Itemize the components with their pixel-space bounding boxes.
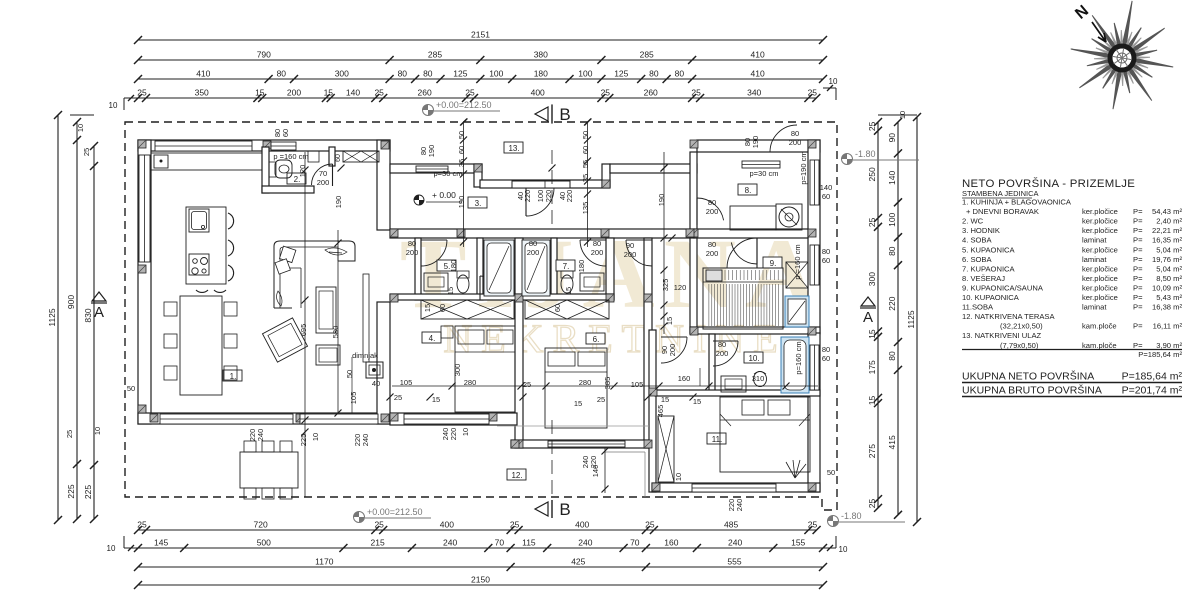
svg-text:80: 80 bbox=[718, 340, 726, 349]
svg-text:135: 135 bbox=[581, 202, 590, 215]
svg-text:5,43 m²: 5,43 m² bbox=[1156, 293, 1182, 302]
svg-text:P=: P= bbox=[1133, 293, 1143, 302]
svg-text:80: 80 bbox=[708, 198, 716, 207]
svg-text:12. NATKRIVENA TERASA: 12. NATKRIVENA TERASA bbox=[962, 312, 1055, 321]
svg-text:25: 25 bbox=[691, 88, 701, 98]
svg-text:240: 240 bbox=[361, 434, 370, 447]
svg-text:15: 15 bbox=[574, 399, 582, 408]
svg-text:9. KUPAONICA/SAUNA: 9. KUPAONICA/SAUNA bbox=[962, 284, 1044, 293]
svg-text:10: 10 bbox=[93, 427, 102, 435]
svg-text:200: 200 bbox=[716, 349, 729, 358]
svg-text:225: 225 bbox=[83, 485, 93, 499]
svg-text:105: 105 bbox=[400, 378, 413, 387]
svg-text:ker.pločice: ker.pločice bbox=[1082, 264, 1118, 273]
svg-text:1. KUHINJA + BLAGOVAONICA: 1. KUHINJA + BLAGOVAONICA bbox=[962, 198, 1072, 207]
svg-text:260: 260 bbox=[644, 88, 658, 98]
svg-text:10: 10 bbox=[839, 545, 848, 554]
svg-text:3,90 m²: 3,90 m² bbox=[1156, 341, 1182, 350]
svg-text:10,09 m²: 10,09 m² bbox=[1152, 284, 1182, 293]
svg-text:220: 220 bbox=[523, 190, 532, 203]
svg-text:60: 60 bbox=[335, 154, 342, 162]
svg-text:160: 160 bbox=[678, 374, 691, 383]
svg-text:200: 200 bbox=[317, 178, 330, 187]
svg-text:70: 70 bbox=[495, 538, 505, 548]
svg-text:200: 200 bbox=[624, 250, 637, 259]
svg-text:6. SOBA: 6. SOBA bbox=[962, 255, 992, 264]
svg-text:P=: P= bbox=[1133, 264, 1143, 273]
svg-text:1125: 1125 bbox=[47, 308, 57, 327]
svg-text:105: 105 bbox=[631, 380, 644, 389]
svg-text:kam.ploče: kam.ploče bbox=[1082, 322, 1117, 331]
svg-text:400: 400 bbox=[440, 520, 454, 530]
svg-text:B: B bbox=[559, 500, 570, 519]
svg-text:P=: P= bbox=[1133, 217, 1143, 226]
svg-text:80: 80 bbox=[887, 246, 897, 256]
svg-text:4. SOBA: 4. SOBA bbox=[962, 236, 992, 245]
svg-text:16,11 m²: 16,11 m² bbox=[1153, 322, 1183, 331]
svg-text:11.: 11. bbox=[712, 435, 723, 444]
svg-text:p =160 cm: p =160 cm bbox=[793, 244, 802, 279]
svg-text:145: 145 bbox=[154, 538, 168, 548]
svg-text:dimnjak: dimnjak bbox=[352, 351, 378, 360]
svg-text:340: 340 bbox=[747, 88, 761, 98]
svg-text:190: 190 bbox=[427, 145, 436, 158]
svg-text:25: 25 bbox=[137, 520, 147, 530]
svg-text:P=: P= bbox=[1133, 303, 1143, 312]
svg-text:200: 200 bbox=[706, 249, 719, 258]
svg-text:15: 15 bbox=[665, 317, 674, 325]
svg-text:laminat: laminat bbox=[1082, 303, 1107, 312]
svg-text:280: 280 bbox=[464, 378, 477, 387]
svg-text:10: 10 bbox=[674, 473, 683, 481]
svg-text:(7,79x0,50): (7,79x0,50) bbox=[1000, 341, 1039, 350]
svg-text:7. KUPAONICA: 7. KUPAONICA bbox=[962, 264, 1016, 273]
svg-text:25: 25 bbox=[510, 520, 520, 530]
svg-text:-1.80: -1.80 bbox=[855, 149, 876, 159]
svg-text:80: 80 bbox=[791, 129, 799, 138]
svg-text:285: 285 bbox=[428, 50, 442, 60]
svg-text:15: 15 bbox=[255, 88, 265, 98]
svg-text:200: 200 bbox=[406, 248, 419, 257]
svg-text:80: 80 bbox=[529, 239, 537, 248]
svg-text:15: 15 bbox=[432, 395, 440, 404]
svg-text:190: 190 bbox=[334, 196, 343, 209]
svg-text:140: 140 bbox=[346, 88, 360, 98]
svg-text:240: 240 bbox=[735, 499, 744, 512]
svg-text:15: 15 bbox=[324, 88, 334, 98]
svg-text:200: 200 bbox=[287, 88, 301, 98]
svg-text:+ 0.00: + 0.00 bbox=[432, 190, 456, 200]
svg-text:25: 25 bbox=[867, 217, 877, 227]
svg-text:400: 400 bbox=[531, 88, 545, 98]
svg-text:25: 25 bbox=[808, 520, 818, 530]
svg-text:300: 300 bbox=[453, 364, 462, 377]
svg-text:laminat: laminat bbox=[1082, 236, 1107, 245]
svg-text:ker.pločice: ker.pločice bbox=[1082, 245, 1118, 254]
svg-text:25: 25 bbox=[808, 88, 818, 98]
svg-text:260: 260 bbox=[418, 88, 432, 98]
svg-text:10: 10 bbox=[76, 124, 85, 132]
svg-text:80: 80 bbox=[649, 69, 659, 79]
svg-text:100: 100 bbox=[489, 69, 503, 79]
svg-text:120: 120 bbox=[298, 165, 307, 178]
svg-text:580: 580 bbox=[331, 326, 340, 339]
svg-text:UKUPNA BRUTO POVRŠINA: UKUPNA BRUTO POVRŠINA bbox=[962, 384, 1102, 397]
svg-text:p=30 cm: p=30 cm bbox=[750, 169, 779, 178]
svg-text:830: 830 bbox=[83, 308, 93, 322]
svg-text:15: 15 bbox=[446, 287, 455, 295]
svg-text:200: 200 bbox=[668, 344, 677, 357]
svg-text:155: 155 bbox=[791, 538, 805, 548]
svg-text:P=: P= bbox=[1133, 274, 1143, 283]
svg-text:900: 900 bbox=[66, 295, 76, 309]
svg-text:385: 385 bbox=[603, 377, 612, 390]
svg-text:7.: 7. bbox=[563, 262, 570, 271]
svg-text:p=160 cm: p=160 cm bbox=[794, 341, 803, 374]
svg-text:2. WC: 2. WC bbox=[962, 217, 984, 226]
svg-text:220: 220 bbox=[565, 190, 574, 203]
svg-text:5,04 m²: 5,04 m² bbox=[1156, 264, 1182, 273]
svg-text:5,04 m²: 5,04 m² bbox=[1156, 245, 1182, 254]
svg-text:790: 790 bbox=[257, 50, 271, 60]
svg-text:105: 105 bbox=[349, 392, 358, 405]
svg-text:10: 10 bbox=[107, 544, 116, 553]
svg-text:p =160 cm: p =160 cm bbox=[273, 152, 308, 161]
svg-text:11.SOBA: 11.SOBA bbox=[962, 303, 994, 312]
svg-text:kam.ploče: kam.ploče bbox=[1082, 341, 1117, 350]
svg-text:280: 280 bbox=[579, 378, 592, 387]
svg-text:220: 220 bbox=[544, 190, 553, 203]
svg-text:225: 225 bbox=[299, 434, 308, 447]
svg-text:465: 465 bbox=[656, 405, 665, 418]
svg-text:8. VEŠERAJ: 8. VEŠERAJ bbox=[962, 274, 1005, 283]
svg-text:15: 15 bbox=[693, 397, 701, 406]
svg-text:55: 55 bbox=[581, 160, 590, 168]
svg-text:70: 70 bbox=[630, 538, 640, 548]
svg-text:25: 25 bbox=[645, 520, 655, 530]
svg-text:50: 50 bbox=[827, 468, 835, 477]
svg-text:1125: 1125 bbox=[906, 310, 916, 329]
svg-text:70: 70 bbox=[319, 169, 327, 178]
svg-text:+0.00=212.50: +0.00=212.50 bbox=[436, 100, 492, 110]
svg-text:P=: P= bbox=[1133, 255, 1143, 264]
svg-text:485: 485 bbox=[724, 520, 738, 530]
svg-text:410: 410 bbox=[751, 69, 765, 79]
svg-text:310: 310 bbox=[752, 374, 765, 383]
svg-text:25: 25 bbox=[65, 430, 74, 438]
svg-text:325: 325 bbox=[661, 279, 670, 292]
svg-text:80: 80 bbox=[822, 345, 830, 354]
svg-text:p=30 cm: p=30 cm bbox=[434, 169, 463, 178]
svg-text:60: 60 bbox=[822, 192, 830, 201]
svg-text:19,76 m²: 19,76 m² bbox=[1152, 255, 1182, 264]
svg-text:P=: P= bbox=[1133, 322, 1143, 331]
svg-text:35: 35 bbox=[457, 159, 466, 167]
svg-text:3.: 3. bbox=[475, 199, 482, 208]
svg-text:125: 125 bbox=[453, 69, 467, 79]
svg-text:80: 80 bbox=[887, 351, 897, 361]
svg-text:60: 60 bbox=[822, 354, 830, 363]
svg-text:15: 15 bbox=[661, 395, 669, 404]
svg-text:13. NATKRIVENI ULAZ: 13. NATKRIVENI ULAZ bbox=[962, 331, 1042, 340]
svg-text:2150: 2150 bbox=[471, 575, 490, 585]
svg-text:1170: 1170 bbox=[315, 557, 334, 567]
svg-text:25: 25 bbox=[137, 88, 147, 98]
svg-text:25: 25 bbox=[394, 393, 402, 402]
svg-text:50: 50 bbox=[345, 370, 354, 378]
svg-text:10: 10 bbox=[311, 433, 320, 441]
svg-text:P=201,74 m²: P=201,74 m² bbox=[1122, 385, 1183, 397]
svg-text:ker.pločice: ker.pločice bbox=[1082, 217, 1118, 226]
svg-text:60: 60 bbox=[553, 304, 562, 312]
svg-text:100: 100 bbox=[578, 69, 592, 79]
svg-text:54,43 m²: 54,43 m² bbox=[1152, 207, 1182, 216]
svg-text:140: 140 bbox=[820, 183, 833, 192]
svg-text:300: 300 bbox=[335, 69, 349, 79]
svg-text:40: 40 bbox=[372, 379, 380, 388]
svg-text:80: 80 bbox=[822, 247, 830, 256]
svg-text:720: 720 bbox=[254, 520, 268, 530]
svg-text:25: 25 bbox=[465, 88, 475, 98]
svg-text:180: 180 bbox=[577, 260, 586, 273]
svg-text:13.: 13. bbox=[508, 144, 519, 153]
svg-text:UKUPNA NETO POVRŠINA: UKUPNA NETO POVRŠINA bbox=[962, 370, 1094, 383]
svg-text:200: 200 bbox=[789, 138, 802, 147]
svg-text:200: 200 bbox=[591, 248, 604, 257]
svg-text:10. KUPAONICA: 10. KUPAONICA bbox=[962, 293, 1020, 302]
svg-text:8.: 8. bbox=[745, 186, 752, 195]
svg-text:215: 215 bbox=[371, 538, 385, 548]
svg-text:285: 285 bbox=[640, 50, 654, 60]
svg-text:B: B bbox=[559, 105, 570, 124]
svg-text:140: 140 bbox=[591, 465, 600, 478]
svg-text:425: 425 bbox=[571, 557, 585, 567]
svg-text:(32,21x0,50): (32,21x0,50) bbox=[1000, 322, 1043, 331]
svg-text:80: 80 bbox=[277, 69, 287, 79]
svg-text:80: 80 bbox=[708, 240, 716, 249]
svg-text:175: 175 bbox=[867, 360, 877, 374]
svg-text:12.: 12. bbox=[511, 471, 522, 480]
svg-text:2151: 2151 bbox=[471, 30, 490, 40]
svg-text:10: 10 bbox=[461, 428, 470, 436]
svg-text:220: 220 bbox=[449, 428, 458, 441]
svg-text:ker.pločice: ker.pločice bbox=[1082, 293, 1118, 302]
svg-text:400: 400 bbox=[575, 520, 589, 530]
svg-text:140: 140 bbox=[887, 171, 897, 185]
svg-text:120: 120 bbox=[674, 283, 687, 292]
svg-text:9.: 9. bbox=[770, 259, 777, 268]
svg-text:380: 380 bbox=[534, 50, 548, 60]
svg-text:410: 410 bbox=[196, 69, 210, 79]
svg-text:P=: P= bbox=[1133, 207, 1143, 216]
svg-text:25: 25 bbox=[867, 121, 877, 131]
svg-text:P=: P= bbox=[1133, 226, 1143, 235]
svg-text:60: 60 bbox=[822, 256, 830, 265]
svg-text:16,38 m²: 16,38 m² bbox=[1152, 303, 1182, 312]
svg-text:80: 80 bbox=[593, 239, 601, 248]
svg-text:10: 10 bbox=[829, 77, 838, 86]
svg-text:2,40 m²: 2,40 m² bbox=[1156, 217, 1182, 226]
svg-text:125: 125 bbox=[614, 69, 628, 79]
svg-text:25: 25 bbox=[867, 499, 877, 509]
svg-text:50: 50 bbox=[457, 131, 466, 139]
svg-text:160: 160 bbox=[664, 538, 678, 548]
svg-text:80: 80 bbox=[398, 69, 408, 79]
svg-text:5. KUPAONICA: 5. KUPAONICA bbox=[962, 245, 1016, 254]
svg-text:190: 190 bbox=[751, 136, 760, 149]
svg-text:25: 25 bbox=[374, 520, 384, 530]
svg-text:410: 410 bbox=[751, 50, 765, 60]
svg-text:ker.pločice: ker.pločice bbox=[1082, 274, 1118, 283]
svg-text:190: 190 bbox=[657, 194, 666, 207]
svg-text:25: 25 bbox=[523, 380, 531, 389]
svg-text:180: 180 bbox=[534, 69, 548, 79]
svg-text:P=185,64 m²: P=185,64 m² bbox=[1122, 371, 1183, 383]
svg-text:200: 200 bbox=[706, 207, 719, 216]
svg-text:-1.80: -1.80 bbox=[841, 511, 862, 521]
svg-text:25: 25 bbox=[374, 88, 384, 98]
svg-text:180: 180 bbox=[449, 260, 458, 273]
svg-text:250: 250 bbox=[867, 167, 877, 181]
svg-text:90: 90 bbox=[887, 133, 897, 143]
svg-text:4.: 4. bbox=[429, 334, 436, 343]
svg-text:15: 15 bbox=[867, 396, 877, 406]
svg-text:22,21 m²: 22,21 m² bbox=[1152, 226, 1182, 235]
svg-text:P=: P= bbox=[1133, 245, 1143, 254]
svg-text:P=: P= bbox=[1133, 284, 1143, 293]
svg-text:695: 695 bbox=[299, 324, 308, 337]
svg-text:15: 15 bbox=[564, 287, 573, 295]
svg-text:+0.00=212.50: +0.00=212.50 bbox=[367, 507, 423, 517]
svg-text:6.: 6. bbox=[593, 335, 600, 344]
svg-text:ker.pločice: ker.pločice bbox=[1082, 284, 1118, 293]
svg-text:laminat: laminat bbox=[1082, 255, 1107, 264]
svg-text:240: 240 bbox=[256, 429, 265, 442]
svg-text:P=: P= bbox=[1133, 236, 1143, 245]
svg-text:80: 80 bbox=[423, 69, 433, 79]
svg-text:A: A bbox=[863, 309, 873, 326]
svg-text:240: 240 bbox=[443, 538, 457, 548]
svg-text:35: 35 bbox=[581, 174, 590, 182]
svg-text:240: 240 bbox=[578, 538, 592, 548]
svg-text:275: 275 bbox=[867, 444, 877, 458]
svg-text:3. HODNIK: 3. HODNIK bbox=[962, 226, 1000, 235]
svg-text:50: 50 bbox=[127, 384, 135, 393]
svg-text:60: 60 bbox=[457, 146, 466, 154]
svg-text:P=185,64 m²: P=185,64 m² bbox=[1138, 350, 1182, 359]
svg-text:115: 115 bbox=[522, 538, 536, 548]
svg-text:25: 25 bbox=[601, 88, 611, 98]
svg-text:500: 500 bbox=[257, 538, 271, 548]
svg-text:10.: 10. bbox=[748, 354, 759, 363]
svg-text:25: 25 bbox=[82, 148, 91, 156]
svg-text:90: 90 bbox=[626, 241, 634, 250]
svg-text:200: 200 bbox=[527, 248, 540, 257]
svg-text:100: 100 bbox=[887, 212, 897, 226]
svg-text:15: 15 bbox=[423, 304, 432, 312]
svg-text:16,35 m²: 16,35 m² bbox=[1152, 236, 1182, 245]
svg-text:80: 80 bbox=[408, 239, 416, 248]
svg-text:240: 240 bbox=[728, 538, 742, 548]
svg-text:p=190 cm: p=190 cm bbox=[799, 151, 808, 184]
svg-text:10: 10 bbox=[109, 101, 118, 110]
svg-text:225: 225 bbox=[66, 484, 76, 498]
svg-text:350: 350 bbox=[195, 88, 209, 98]
svg-text:ker.pločice: ker.pločice bbox=[1082, 226, 1118, 235]
svg-text:+ DNEVNI BORAVAK: + DNEVNI BORAVAK bbox=[966, 207, 1039, 216]
svg-text:80: 80 bbox=[675, 69, 685, 79]
svg-text:220: 220 bbox=[887, 296, 897, 310]
svg-text:555: 555 bbox=[727, 557, 741, 567]
svg-text:50: 50 bbox=[581, 131, 590, 139]
svg-text:300: 300 bbox=[867, 272, 877, 286]
svg-text:15: 15 bbox=[867, 329, 877, 339]
svg-text:60: 60 bbox=[581, 146, 590, 154]
svg-text:ker.pločice: ker.pločice bbox=[1082, 207, 1118, 216]
svg-text:8,50 m²: 8,50 m² bbox=[1156, 274, 1182, 283]
svg-text:A: A bbox=[94, 304, 104, 321]
svg-text:60: 60 bbox=[438, 304, 447, 312]
svg-text:25: 25 bbox=[597, 395, 605, 404]
svg-text:60: 60 bbox=[281, 129, 290, 137]
svg-text:P=: P= bbox=[1133, 341, 1143, 350]
svg-text:415: 415 bbox=[887, 435, 897, 449]
